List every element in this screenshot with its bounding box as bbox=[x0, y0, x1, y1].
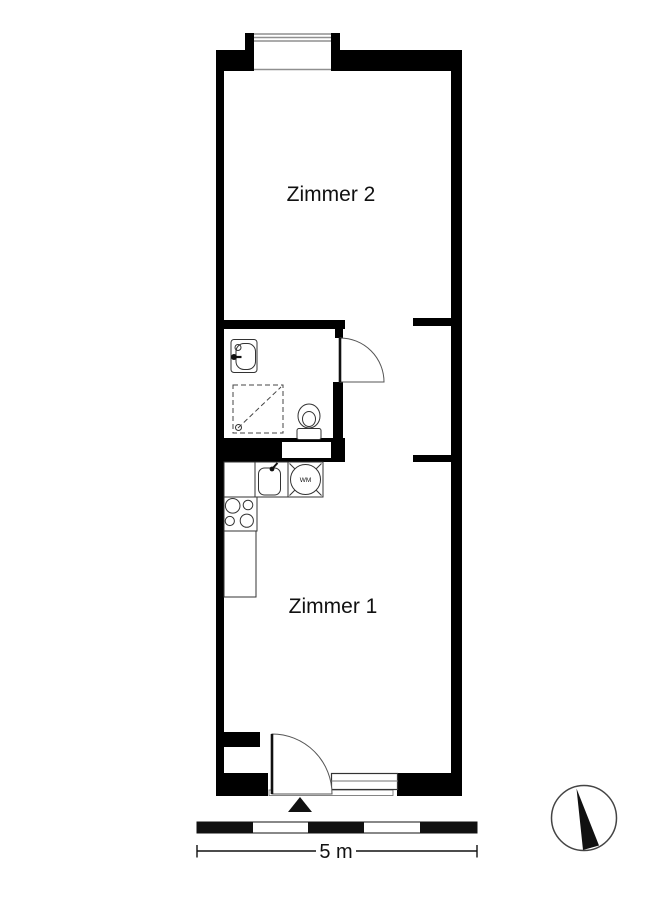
kitchen-counter-lower bbox=[224, 531, 256, 597]
entrance-triangle-icon bbox=[288, 797, 312, 812]
scale-bar-segment bbox=[420, 822, 477, 833]
kitchen-sink-basin bbox=[259, 468, 281, 495]
interior-walls bbox=[224, 318, 451, 747]
shower-diagonal bbox=[238, 387, 281, 428]
bathroom-sink bbox=[231, 340, 257, 373]
scale-bar: 5 m bbox=[197, 822, 477, 863]
wall-right bbox=[451, 50, 462, 796]
floor-plan: WM Zimmer 2 Zimmer 1 5 m bbox=[0, 0, 672, 910]
floor-plan-page: WM Zimmer 2 Zimmer 1 5 m bbox=[0, 0, 672, 910]
toilet-bowl bbox=[298, 404, 320, 428]
top-window bbox=[254, 34, 331, 70]
bath-hall-wall bbox=[333, 382, 343, 438]
hall-bottom-wall-stub bbox=[413, 455, 451, 462]
door-swing-arc bbox=[340, 338, 384, 382]
room-label-zimmer2: Zimmer 2 bbox=[287, 183, 376, 206]
kitchen-counter-segment bbox=[224, 462, 255, 497]
scale-bar-segment bbox=[197, 822, 253, 833]
wall-left bbox=[216, 50, 224, 796]
shower bbox=[233, 385, 283, 433]
wall-bottom-left bbox=[216, 773, 268, 796]
hall-top-wall-stub bbox=[413, 318, 451, 326]
toilet-tank bbox=[297, 429, 321, 440]
washing-machine-label: WM bbox=[300, 477, 312, 484]
bath-top-wall bbox=[224, 320, 345, 329]
door-swing-arc bbox=[272, 734, 332, 794]
entry-wall-stub bbox=[224, 732, 260, 747]
north-arrow-icon bbox=[552, 786, 617, 851]
window-bay-stub-right bbox=[331, 33, 340, 51]
room-label-zimmer1: Zimmer 1 bbox=[289, 595, 378, 618]
bathroom-door bbox=[340, 338, 384, 382]
bath-door-jamb bbox=[335, 320, 343, 338]
kitchen: WM bbox=[224, 462, 323, 597]
installation-shaft bbox=[282, 442, 331, 458]
entrance-door bbox=[272, 734, 332, 794]
window-bay-stub-left bbox=[245, 33, 254, 51]
stove bbox=[224, 497, 257, 531]
scale-bar-segment bbox=[308, 822, 364, 833]
wall-top-right-of-window bbox=[331, 50, 462, 71]
toilet bbox=[297, 404, 321, 440]
washing-machine: WM bbox=[288, 462, 323, 497]
scale-label: 5 m bbox=[319, 841, 352, 863]
wall-bottom-right bbox=[397, 773, 462, 796]
